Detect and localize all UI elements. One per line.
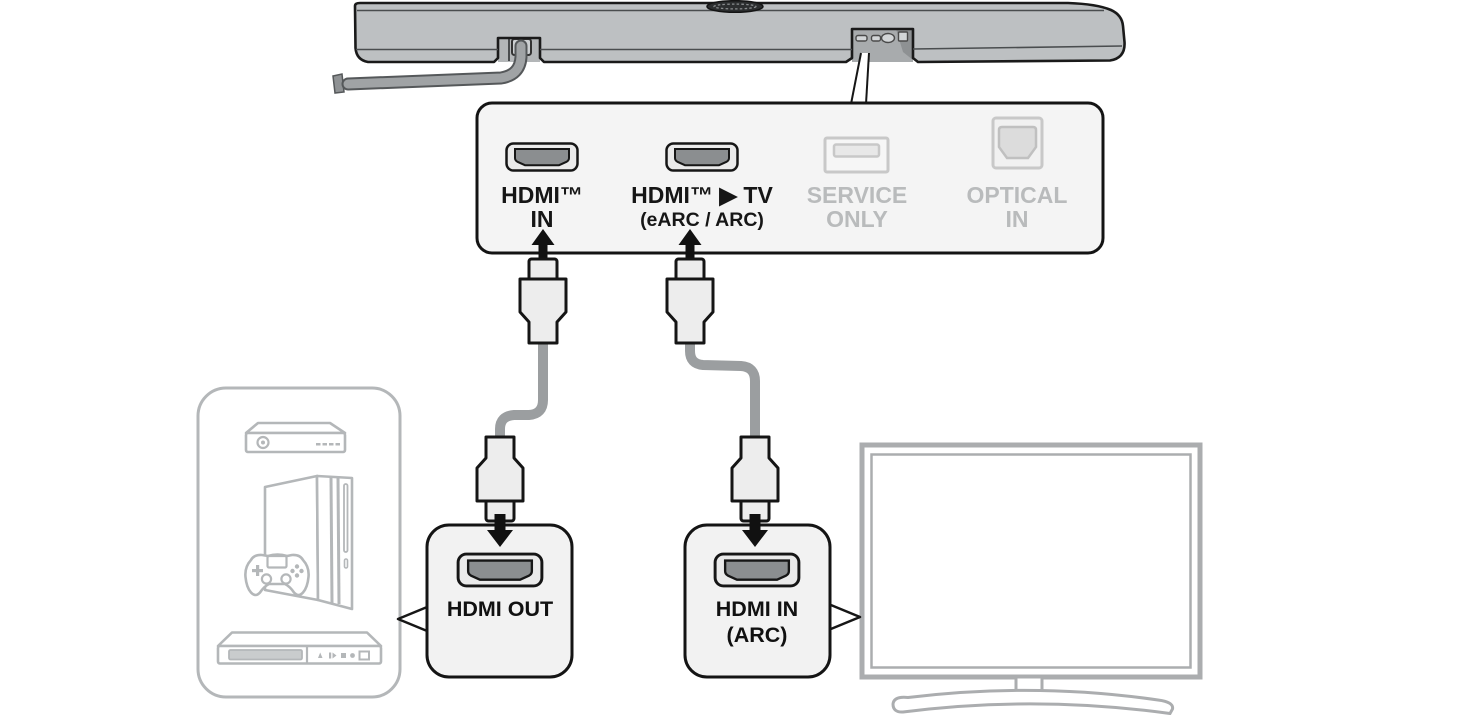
bay-usb-port-icon — [882, 34, 895, 43]
service-label-line2: ONLY — [826, 206, 888, 232]
optical-label-line1: OPTICAL — [967, 182, 1068, 208]
soundbar-top-display — [707, 1, 763, 13]
hdmi-in-port-icon — [507, 144, 578, 171]
hdmi-in-label-line1: HDMI™ — [501, 182, 583, 208]
external-devices-box — [198, 388, 400, 697]
hdmi-arc-port-icon — [715, 554, 799, 586]
soundbar-connection-diagram: HDMI™ IN HDMI™ ▶ TV (eARC / ARC) SERVICE… — [0, 0, 1465, 715]
hdmi-arc-label-line2: (ARC) — [727, 623, 788, 647]
bay-hdmi-port-icon — [856, 36, 867, 42]
hdmi-plug-icon — [477, 437, 523, 521]
tv-stand-base — [893, 690, 1173, 713]
diagram-canvas: HDMI™ IN HDMI™ ▶ TV (eARC / ARC) SERVICE… — [0, 0, 1465, 715]
hdmi-out-port-icon — [458, 554, 542, 586]
hdmi-tv-port-icon — [667, 144, 738, 171]
service-label-line1: SERVICE — [807, 182, 908, 208]
hdmi-in-label-line2: IN — [531, 206, 554, 232]
hdmi-out-box: HDMI OUT — [427, 525, 572, 677]
usb-port-icon — [825, 138, 888, 172]
bay-optical-port-icon — [899, 32, 908, 41]
hdmi-in-arc-box: HDMI IN (ARC) — [685, 525, 830, 677]
tv-screen — [872, 455, 1191, 668]
hdmi-tv-label-line2: (eARC / ARC) — [640, 209, 764, 231]
dvd-player-icon — [218, 633, 381, 664]
game-console-icon — [265, 476, 352, 609]
hdmi-plug-icon — [732, 437, 778, 521]
hdmi-cable-left — [477, 259, 566, 521]
set-top-box-icon — [246, 423, 345, 452]
hdmi-out-label: HDMI OUT — [447, 597, 553, 621]
rear-panel: HDMI™ IN HDMI™ ▶ TV (eARC / ARC) SERVICE… — [477, 103, 1103, 260]
hdmi-cable-right — [667, 259, 778, 521]
hdmi-tv-label-line1: HDMI™ ▶ TV — [631, 182, 773, 208]
optical-label-line2: IN — [1006, 206, 1029, 232]
hdmi-arc-label-line1: HDMI IN — [716, 597, 798, 621]
tv — [862, 445, 1200, 714]
hdmi-plug-icon — [520, 259, 566, 343]
soundbar — [333, 1, 1125, 93]
optical-port-icon — [993, 118, 1042, 168]
hdmi-plug-icon — [667, 259, 713, 343]
bay-hdmi-port-icon — [872, 36, 881, 42]
